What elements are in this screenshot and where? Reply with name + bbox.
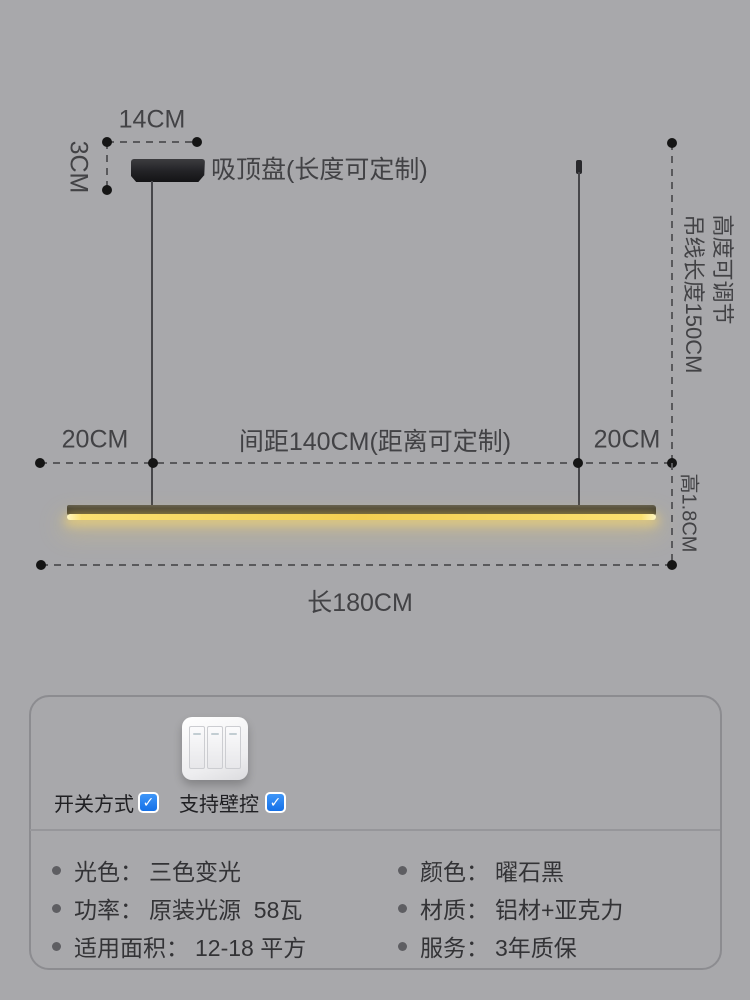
wall-control-label: 支持壁控 — [179, 788, 259, 817]
wall-switch-icon — [182, 717, 248, 780]
ceiling-plate — [131, 159, 205, 182]
switch-rocker — [189, 726, 205, 769]
dimension-dot — [35, 458, 45, 468]
spec-label: 服务： — [420, 929, 489, 963]
product-dimension-sheet: 14CM 3CM 吸顶盘(长度可定制) 高度可调节 吊线长度150CM 20CM… — [0, 0, 750, 1000]
dimension-dot — [667, 138, 677, 148]
suspension-adjustable-text: 高度可调节 — [708, 215, 737, 374]
switch-method-row: 开关方式 ✓ 支持壁控 ✓ — [54, 788, 286, 817]
bullet-icon — [398, 866, 407, 875]
spec-value: 3年质保 — [495, 929, 577, 963]
switch-rocker — [225, 726, 241, 769]
spec-label: 光色： — [74, 853, 143, 887]
suspension-length-label: 高度可调节 吊线长度150CM — [679, 215, 737, 374]
dimension-dot — [667, 560, 677, 570]
switch-method-label: 开关方式 — [54, 788, 134, 817]
spec-row-color: 颜色： 曜石黑 — [398, 853, 564, 887]
bar-height-label: 高1.8CM — [677, 474, 706, 553]
spec-label: 材质： — [420, 891, 489, 925]
bullet-icon — [52, 942, 61, 951]
canopy-width-dimension-line — [107, 141, 197, 143]
spec-label: 颜色： — [420, 853, 489, 887]
spec-row-light-color: 光色： 三色变光 — [52, 853, 241, 887]
switch-rocker — [207, 726, 223, 769]
wall-control-checkbox: ✓ — [265, 792, 286, 813]
canopy-width-label: 14CM — [119, 106, 186, 135]
canopy-height-label: 3CM — [64, 141, 93, 194]
spec-value: 12-18 平方 — [195, 929, 306, 963]
dimension-dot — [192, 137, 202, 147]
bar-length-label: 长180CM — [307, 583, 413, 619]
bullet-icon — [398, 942, 407, 951]
right-suspension-wire — [578, 172, 580, 507]
suspension-length-dimension-line — [671, 143, 673, 463]
spec-row-area: 适用面积： 12-18 平方 — [52, 929, 306, 963]
spacing-label: 间距140CM(距离可定制) — [239, 422, 511, 458]
spec-value: 三色变光 — [149, 853, 241, 887]
spec-value: 铝材+亚克力 — [495, 891, 623, 925]
dimension-dot — [102, 185, 112, 195]
dimension-dot — [36, 560, 46, 570]
bar-height-dimension-line — [671, 463, 673, 565]
spec-label: 功率： — [74, 891, 143, 925]
spec-row-power: 功率： 原装光源 58瓦 — [52, 891, 302, 925]
canopy-height-dimension-line — [106, 142, 108, 190]
spec-value: 原装光源 58瓦 — [149, 891, 302, 925]
overhang-right-label: 20CM — [594, 426, 661, 455]
dimension-dot — [573, 458, 583, 468]
spec-value: 曜石黑 — [495, 853, 564, 887]
checkmark-icon: ✓ — [270, 794, 282, 811]
bullet-icon — [398, 904, 407, 913]
spec-row-material: 材质： 铝材+亚克力 — [398, 891, 623, 925]
card-divider — [30, 829, 720, 831]
spec-label: 适用面积： — [74, 929, 189, 963]
suspension-length-text: 吊线长度150CM — [679, 215, 708, 374]
switch-method-checkbox: ✓ — [138, 792, 159, 813]
dimension-dot — [102, 137, 112, 147]
bullet-icon — [52, 904, 61, 913]
overhang-left-label: 20CM — [62, 426, 129, 455]
bar-length-dimension-line — [41, 564, 672, 566]
bullet-icon — [52, 866, 61, 875]
checkmark-icon: ✓ — [143, 794, 155, 811]
lamp-light-strip — [67, 514, 656, 520]
spec-row-service: 服务： 3年质保 — [398, 929, 577, 963]
canopy-name-label: 吸顶盘(长度可定制) — [211, 150, 428, 186]
dimension-dot — [148, 458, 158, 468]
